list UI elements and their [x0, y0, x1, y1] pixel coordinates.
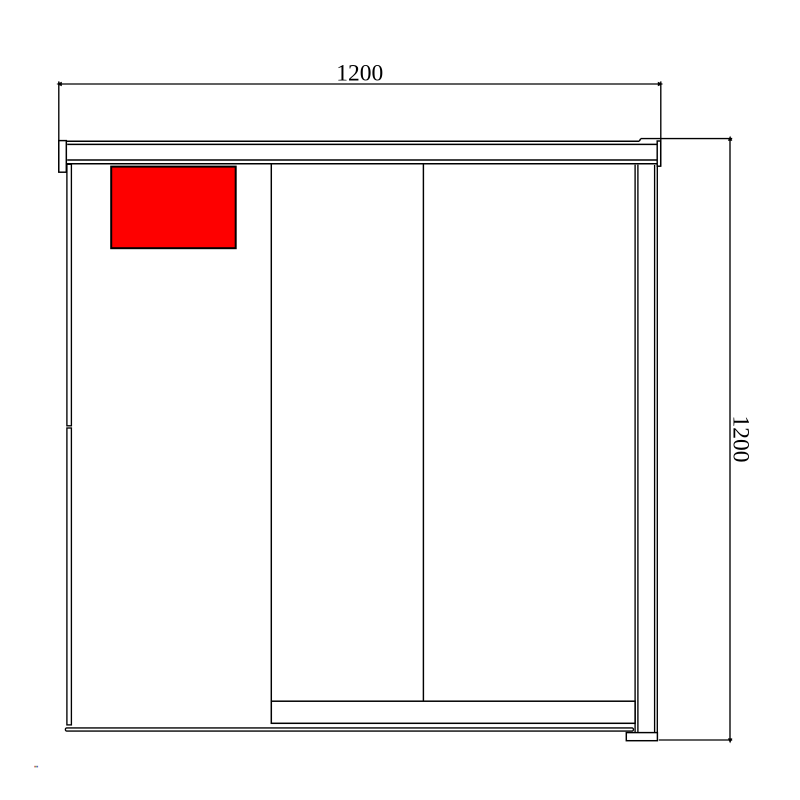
- svg-text:1200: 1200: [336, 61, 383, 87]
- svg-text:1200: 1200: [728, 416, 754, 463]
